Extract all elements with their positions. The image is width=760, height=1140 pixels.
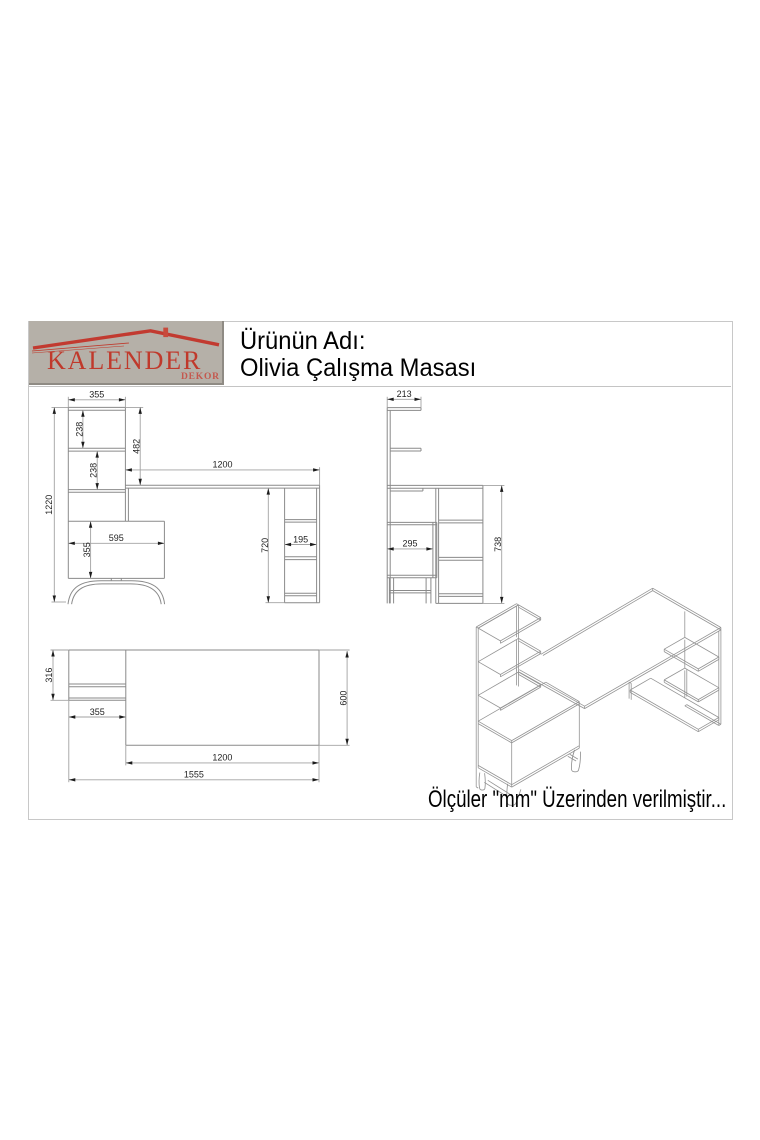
svg-text:355: 355 xyxy=(82,542,92,557)
svg-text:1555: 1555 xyxy=(184,770,204,780)
svg-text:720: 720 xyxy=(260,538,270,553)
svg-text:295: 295 xyxy=(402,538,417,548)
svg-text:1200: 1200 xyxy=(212,460,232,470)
svg-text:213: 213 xyxy=(397,389,412,399)
svg-text:195: 195 xyxy=(293,534,308,544)
svg-text:600: 600 xyxy=(339,691,349,706)
svg-text:1200: 1200 xyxy=(212,753,232,763)
svg-text:595: 595 xyxy=(109,533,124,543)
svg-text:238: 238 xyxy=(74,422,84,437)
svg-text:355: 355 xyxy=(89,390,104,400)
svg-text:238: 238 xyxy=(89,463,99,478)
svg-text:355: 355 xyxy=(90,707,105,717)
svg-text:316: 316 xyxy=(44,668,54,683)
svg-text:482: 482 xyxy=(132,439,142,454)
svg-text:1220: 1220 xyxy=(44,495,54,515)
svg-text:738: 738 xyxy=(493,537,503,552)
